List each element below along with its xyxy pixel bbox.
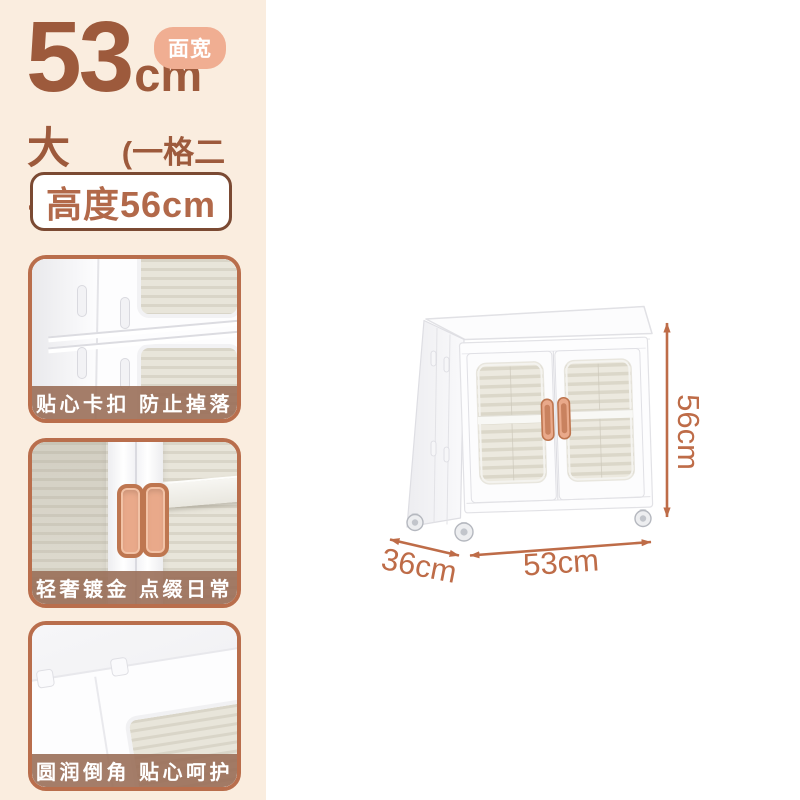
feature-caption: 轻奢镀金 点缀日常 xyxy=(32,571,237,604)
clip-tab xyxy=(36,668,56,688)
side-clip xyxy=(444,357,449,372)
height-dimension-label: 56cm xyxy=(670,394,706,470)
caster-wheel xyxy=(635,509,651,527)
height-box: 高度56cm xyxy=(30,172,232,231)
side-clip xyxy=(431,351,436,366)
feature-caption: 贴心卡扣 防止掉落 xyxy=(32,386,237,419)
cabinet-front xyxy=(459,337,652,513)
side-clip xyxy=(431,441,436,456)
gold-handle-right xyxy=(142,483,169,557)
width-value: 53 xyxy=(26,6,131,108)
buckle-slot xyxy=(77,347,87,379)
buckle-slot xyxy=(77,285,87,317)
width-badge: 面宽 xyxy=(154,27,226,69)
feature-caption: 圆润倒角 贴心呵护 xyxy=(32,754,237,787)
gold-handle-left xyxy=(117,484,144,558)
caster-wheel xyxy=(455,522,473,541)
info-panel: 53 cm 面宽 大号 (一格二层) 高度56cm 贴心卡扣 防止掉落 xyxy=(0,0,266,800)
clip-tab xyxy=(110,656,130,676)
feature-card-rounded-corner: 圆润倒角 贴心呵护 xyxy=(28,621,241,791)
right-door-window xyxy=(564,359,635,482)
feature-card-buckles: 贴心卡扣 防止掉落 xyxy=(28,255,241,423)
door-window xyxy=(137,259,237,318)
side-clip xyxy=(444,447,449,462)
width-dimension-label: 53cm xyxy=(522,542,600,583)
feature-card-handles: 轻奢镀金 点缀日常 xyxy=(28,438,241,608)
cabinet-side-panel xyxy=(407,321,464,528)
buckle-slot xyxy=(120,297,130,329)
